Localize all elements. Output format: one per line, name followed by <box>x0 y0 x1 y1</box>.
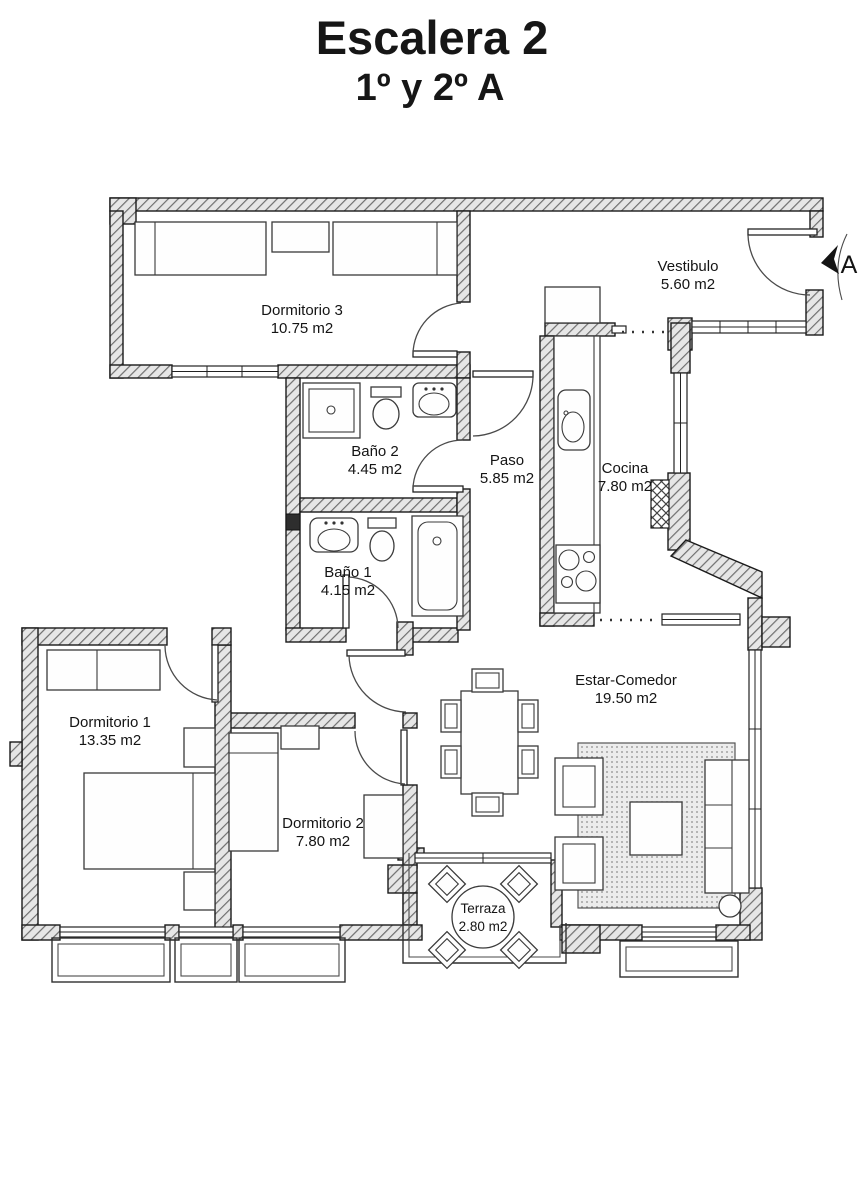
furniture-bano-2 <box>303 383 456 438</box>
room-label-dormitorio-3: Dormitorio 3 <box>261 302 343 319</box>
nightstand <box>281 726 319 749</box>
room-area-dormitorio-3: 10.75 m2 <box>271 320 334 337</box>
nightstand <box>272 222 329 252</box>
chair <box>518 700 538 732</box>
room-area-dormitorio-1: 13.35 m2 <box>79 732 142 749</box>
kitchen-tall-unit <box>545 287 600 323</box>
furniture-dormitorio-3 <box>135 222 457 275</box>
room-label-bano-2: Baño 2 <box>351 443 399 460</box>
single-bed <box>229 733 278 851</box>
room-label-bano-1: Baño 1 <box>324 564 372 581</box>
room-area-paso: 5.85 m2 <box>480 470 534 487</box>
room-label-dormitorio-2: Dormitorio 2 <box>282 815 364 832</box>
nightstand <box>184 872 215 910</box>
room-label-vestibulo: Vestibulo <box>658 258 719 275</box>
room-label-paso: Paso <box>490 452 524 469</box>
toilet <box>371 387 401 397</box>
nightstand <box>184 728 215 767</box>
room-label-terraza: Terraza <box>460 901 506 916</box>
room-area-estar-comedor: 19.50 m2 <box>595 690 658 707</box>
sofa <box>705 760 749 893</box>
armchair <box>555 837 603 890</box>
side-table <box>719 895 741 917</box>
plan-title: Escalera 2 <box>316 11 549 64</box>
plan-subtitle: 1º y 2º A <box>356 67 505 109</box>
chair <box>441 700 461 732</box>
furniture-dormitorio-1 <box>47 650 215 910</box>
bathtub <box>412 516 463 616</box>
floor-plan: Escalera 2 1º y 2º A <box>0 0 864 1184</box>
room-area-vestibulo: 5.60 m2 <box>661 276 715 293</box>
room-label-dormitorio-1: Dormitorio 1 <box>69 714 151 731</box>
chair <box>441 746 461 778</box>
coffee-table <box>630 802 682 855</box>
chair <box>518 746 538 778</box>
entrance-door-leaf <box>748 229 817 235</box>
shower <box>303 383 360 438</box>
room-area-bano-1: 4.15 m2 <box>321 582 375 599</box>
entrance-marker: A <box>821 234 858 300</box>
furniture-terraza <box>429 866 538 969</box>
entrance-arrow-icon <box>821 245 839 274</box>
double-bed <box>84 773 215 869</box>
room-area-terraza: 2.80 m2 <box>459 919 508 934</box>
room-area-cocina: 7.80 m2 <box>598 478 652 495</box>
room-label-estar-comedor: Estar-Comedor <box>575 672 677 689</box>
wardrobe <box>47 650 160 690</box>
room-area-bano-2: 4.45 m2 <box>348 461 402 478</box>
desk <box>364 795 403 858</box>
room-label-cocina: Cocina <box>602 460 649 477</box>
toilet <box>368 518 396 528</box>
entrance-label: A <box>841 251 858 279</box>
dining-table <box>461 691 518 794</box>
round-table <box>452 886 514 948</box>
bed <box>333 222 457 275</box>
room-area-dormitorio-2: 7.80 m2 <box>296 833 350 850</box>
